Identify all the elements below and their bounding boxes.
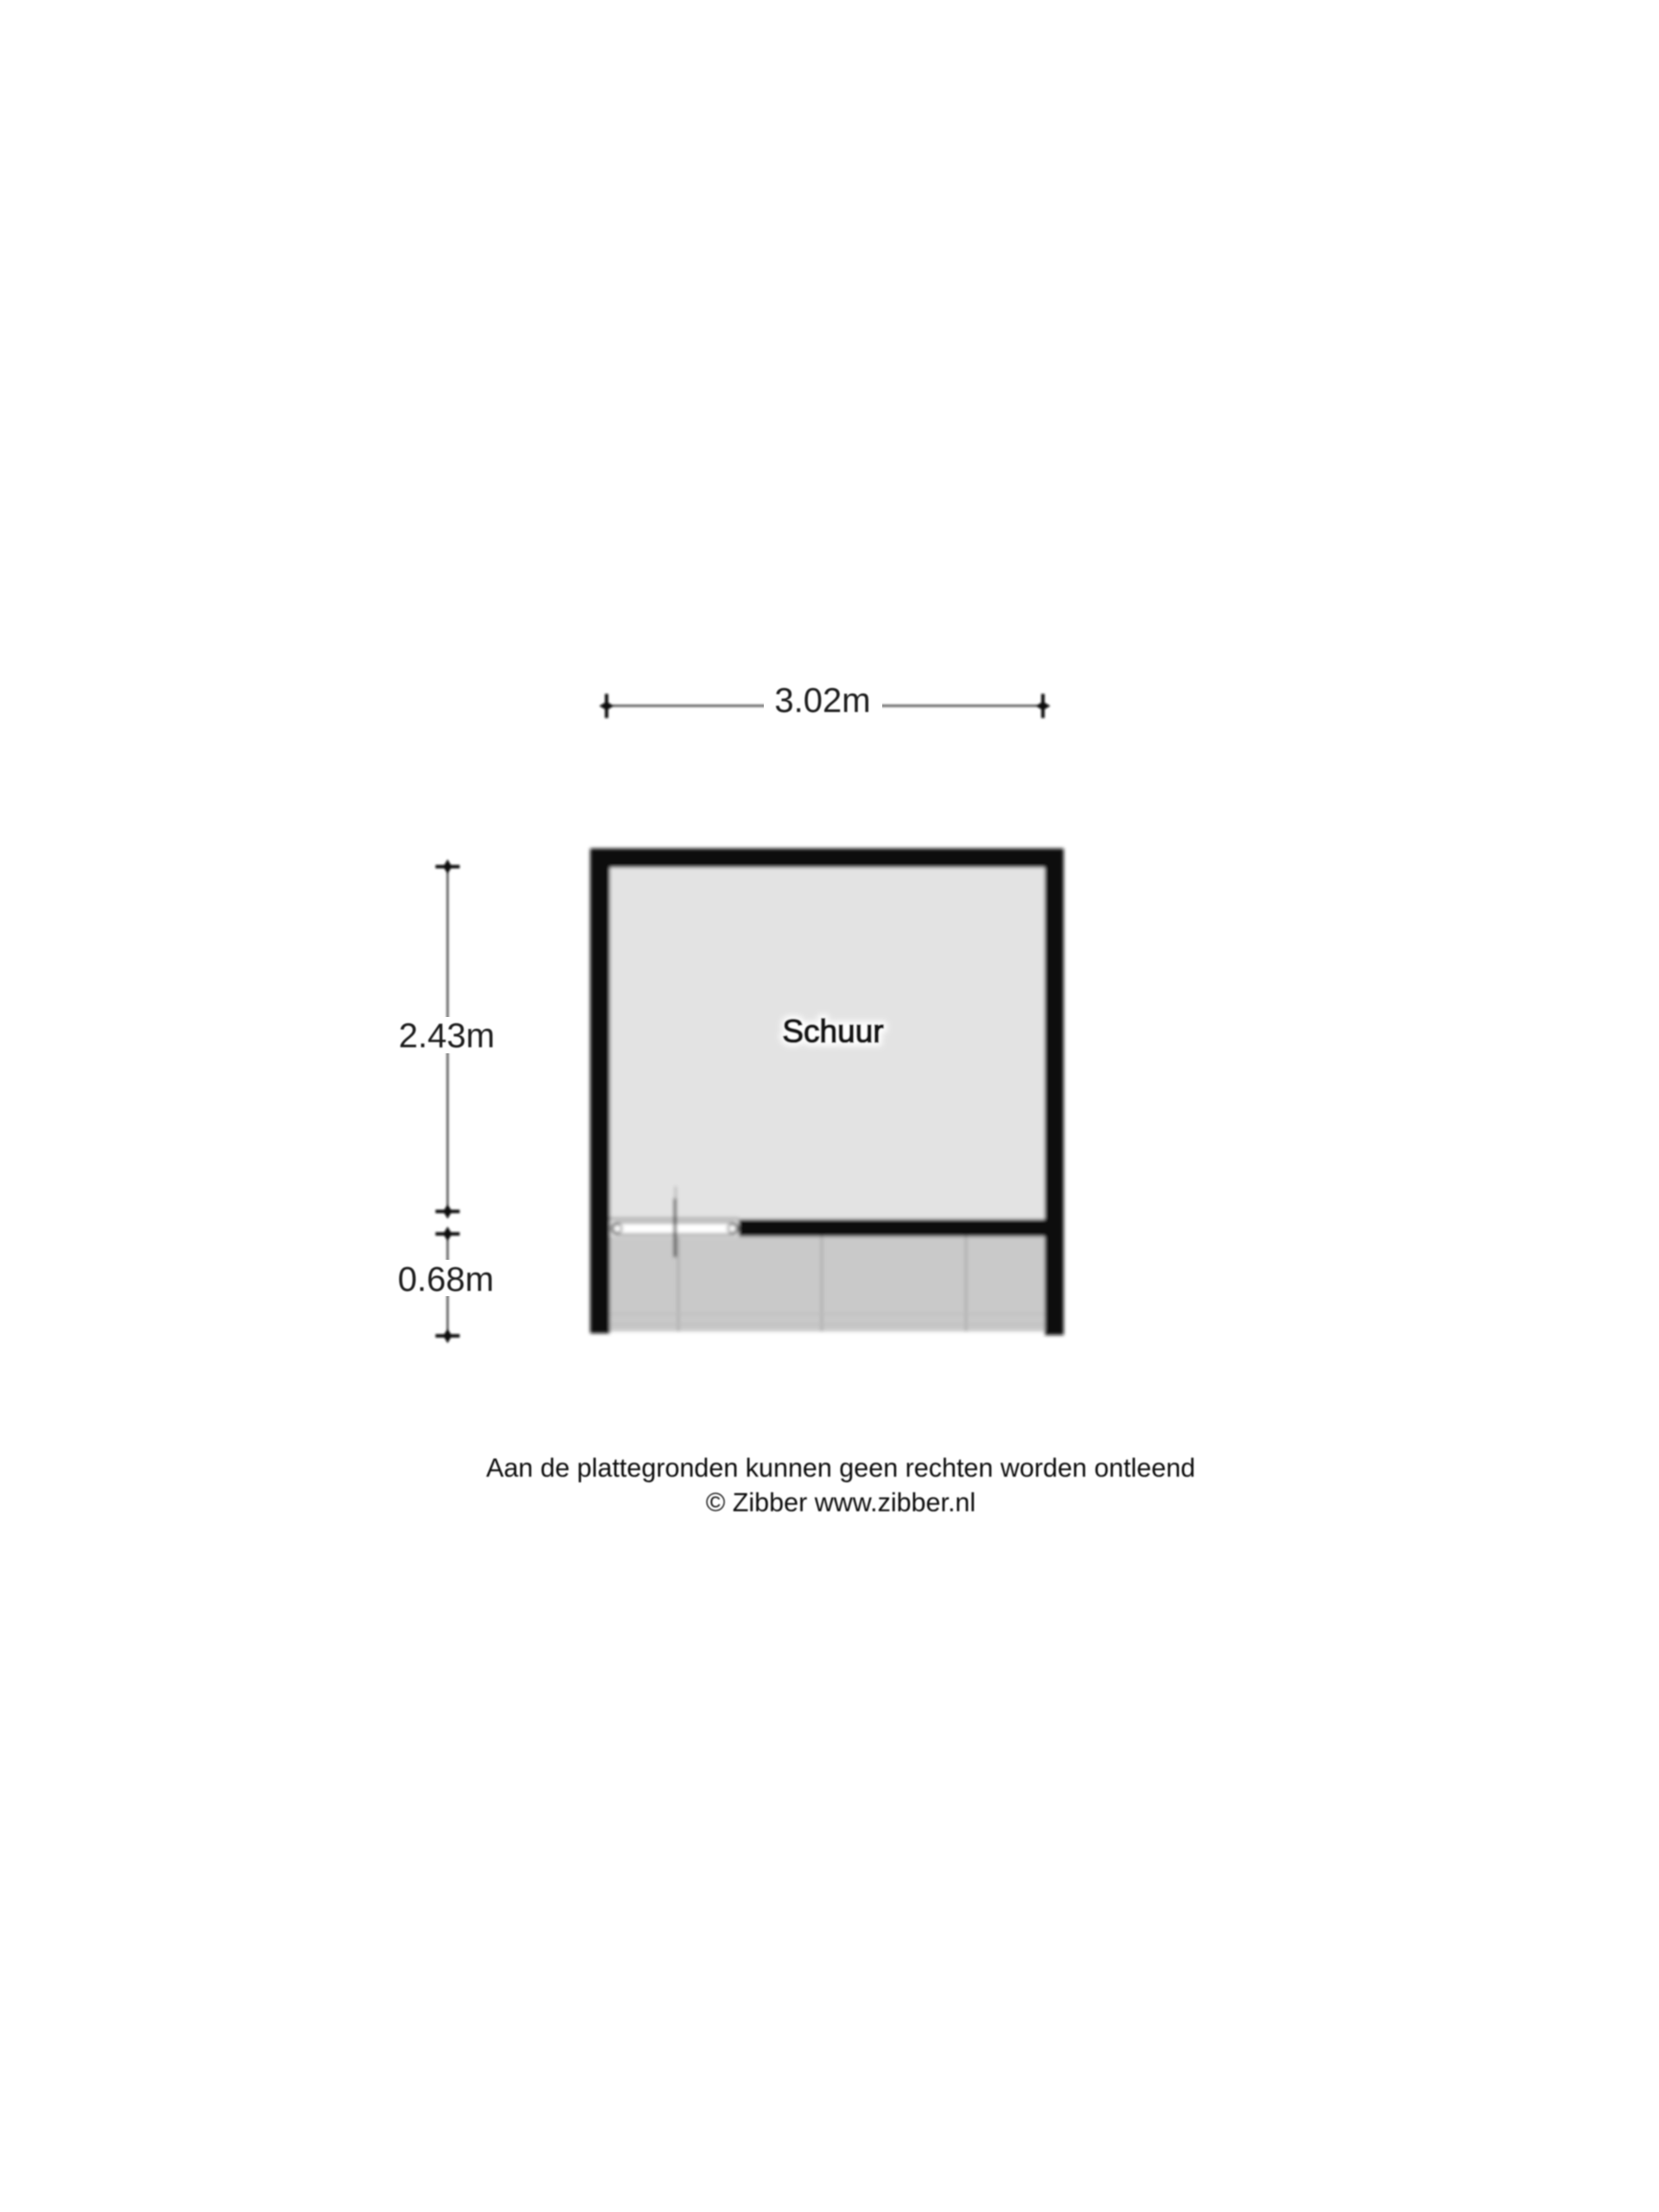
svg-text:0.68m: 0.68m <box>397 1261 493 1299</box>
svg-text:3.02m: 3.02m <box>774 682 870 720</box>
svg-text:© Zibber www.zibber.nl: © Zibber www.zibber.nl <box>706 1488 976 1517</box>
svg-text:Schuur: Schuur <box>782 1014 883 1049</box>
svg-text:Aan de plattegronden kunnen ge: Aan de plattegronden kunnen geen rechten… <box>486 1453 1196 1483</box>
svg-text:2.43m: 2.43m <box>398 1017 494 1055</box>
